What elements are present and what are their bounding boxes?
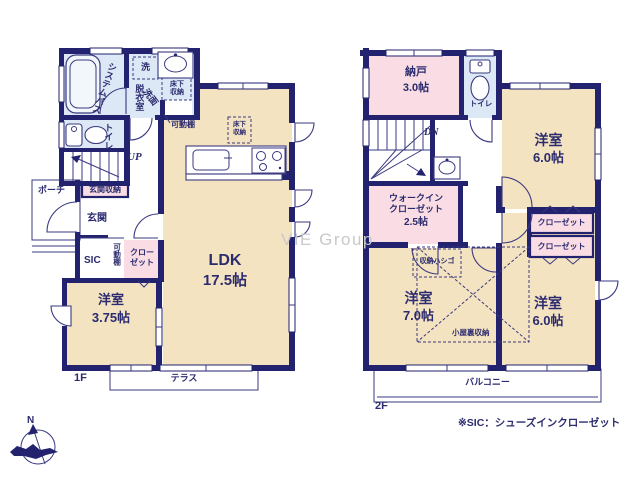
wic-name: ウォークインクローゼット [387, 193, 445, 215]
compass-icon [10, 424, 58, 464]
bedroom1-name: 洋室 [64, 293, 158, 308]
room-label-toilet-2f: トイレ [466, 100, 496, 109]
room-label-entrance: 玄関 [87, 213, 107, 225]
room-label-sic: SIC [84, 255, 101, 267]
wic-size: 2.5帖 [371, 217, 461, 229]
compass-north-label: N [27, 415, 34, 427]
ldk-size: 17.5帖 [162, 272, 288, 289]
room-label-underfloor: 床下収納 [169, 81, 185, 97]
room-label-ldk: LDK 17.5帖 [162, 252, 288, 290]
toilet-icon [66, 124, 82, 146]
storage-ladder-label: 収納ハシゴ [413, 258, 461, 266]
floor1-label: 1F [74, 372, 87, 385]
room-label-entrance-storage: 玄関収納 [82, 185, 128, 194]
bedroom-se-name: 洋室 [500, 295, 596, 311]
bedroom-se-size: 6.0帖 [500, 314, 596, 329]
terrace-label: テラス [110, 373, 258, 383]
room-label-wic: ウォークインクローゼット 2.5帖 [371, 193, 461, 229]
room-label-bedroom-se: 洋室 6.0帖 [500, 295, 596, 329]
f2-closets [530, 206, 593, 264]
floor2-label: 2F [375, 400, 388, 413]
room-label-bedroom-sw: 洋室 7.0帖 [366, 290, 471, 324]
room-label-porch: ポーチ [38, 185, 65, 195]
room-label-bedroom-ne: 洋室 6.0帖 [502, 132, 595, 166]
room-label-closet1: クローゼット [530, 218, 593, 227]
storage-room-name: 納戸 [369, 66, 463, 79]
f2-stairs [369, 120, 430, 179]
bedroom-sw-size: 7.0帖 [366, 309, 471, 324]
watermark: VIE Group [281, 230, 374, 250]
stairs-down-label: DN [424, 127, 438, 139]
stairs-up-label: UP [127, 151, 142, 164]
room-label-closet-1f: クローゼット [129, 248, 155, 268]
room-label-washer: 洗 [141, 62, 150, 72]
bedroom1-size: 3.75帖 [64, 311, 158, 326]
bedroom-sw-name: 洋室 [366, 290, 471, 306]
bedroom-ne-name: 洋室 [502, 132, 595, 148]
room-label-dressing: 脱衣室 [134, 84, 144, 118]
room-label-closet2: クローゼット [530, 242, 593, 251]
room-label-storage-room: 納戸 3.0帖 [369, 66, 463, 94]
room-label-movable-shelf: 可動棚 [112, 243, 121, 277]
ldk-name: LDK [162, 252, 288, 270]
attic-storage-label: 小屋裏収納 [451, 329, 491, 338]
bedroom-ne-size: 6.0帖 [502, 151, 595, 166]
footnote-sic: ※SIC：シューズインクローゼット [458, 417, 620, 429]
room-label-toilet-1f: トイレ [103, 123, 113, 159]
balcony-label: バルコニー [374, 377, 601, 387]
room-label-underfloor-ldk: 床下収納 [232, 121, 247, 136]
room-label-bedroom1: 洋室 3.75帖 [64, 293, 158, 326]
note-movable-shelf: 可動棚 [171, 120, 195, 129]
floor-plan-page: システムバス 洗 脱衣室 洗面 床下収納 可動棚 トイレ UP ポーチ 玄関収納… [0, 0, 640, 480]
storage-room-size: 3.0帖 [369, 82, 463, 95]
